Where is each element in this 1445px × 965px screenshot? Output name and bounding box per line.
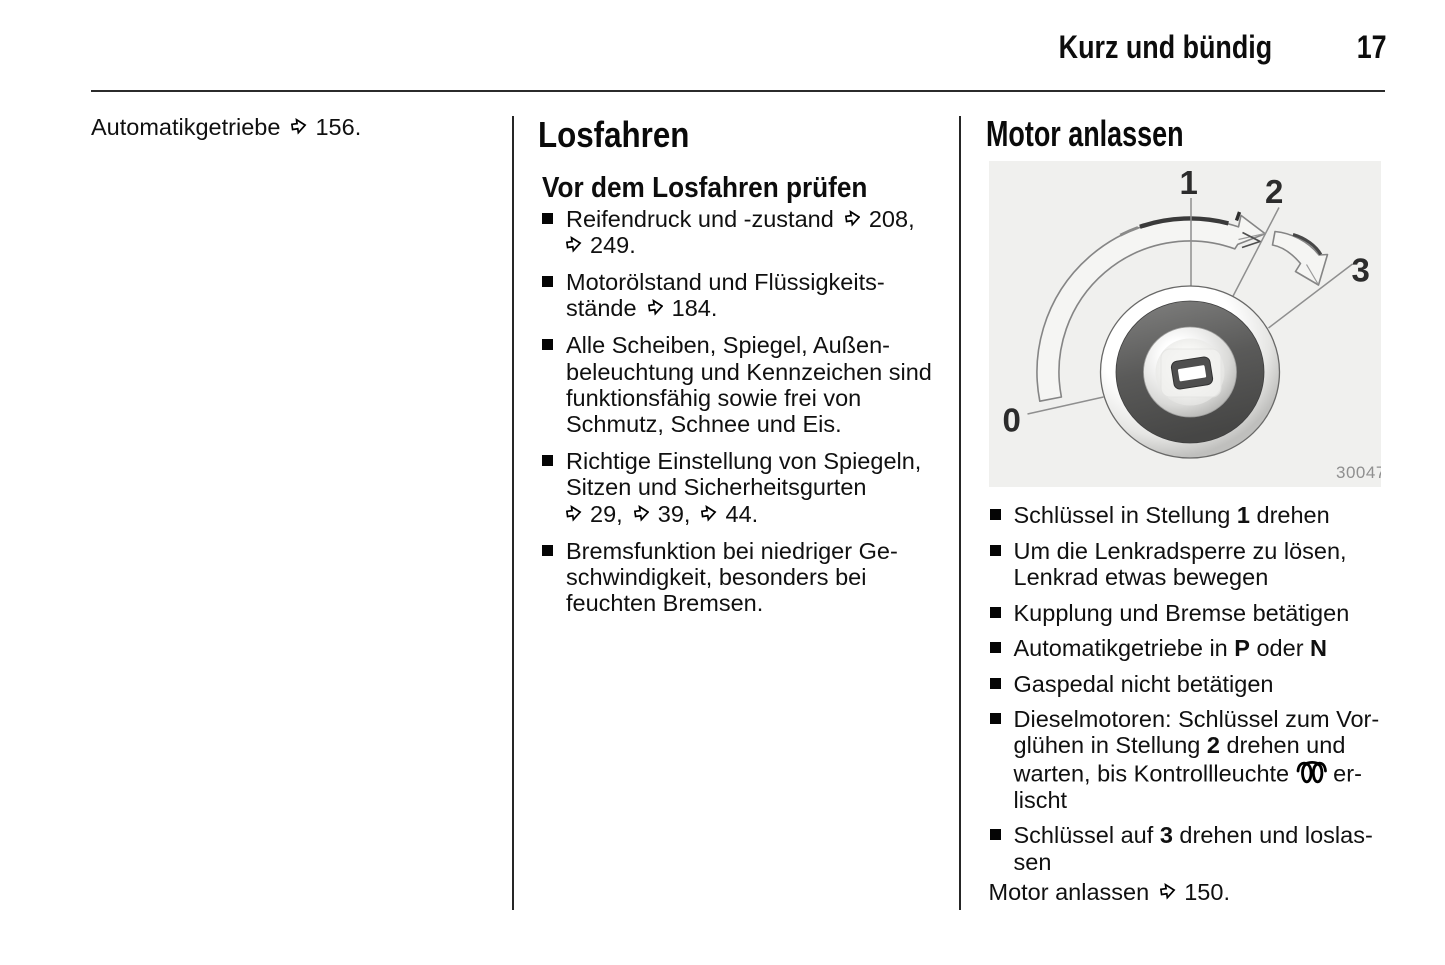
- svg-text:3: 3: [1351, 252, 1369, 289]
- svg-text:0: 0: [1002, 402, 1020, 439]
- svg-text:30047: 30047: [1336, 463, 1381, 482]
- svg-text:2: 2: [1265, 173, 1283, 210]
- svg-text:1: 1: [1179, 164, 1197, 201]
